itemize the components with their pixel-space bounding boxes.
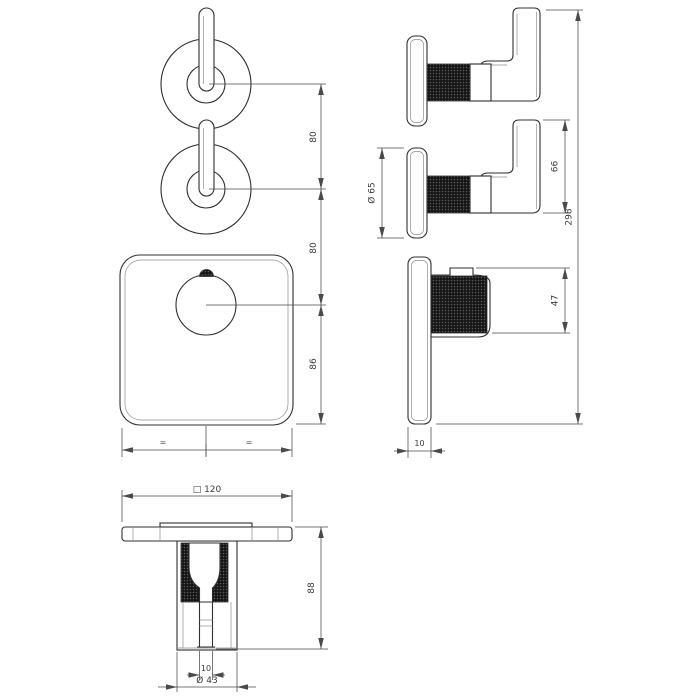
escutcheon-diameter-dimension: Ø 65 bbox=[367, 148, 405, 238]
dim-label-equal-left: = bbox=[160, 438, 167, 447]
mixer-technical-drawing: 80 80 86 = = Ø 65 66 298 bbox=[0, 0, 700, 700]
dim-label-equal-right: = bbox=[246, 438, 253, 447]
front-view-knobs bbox=[161, 8, 251, 234]
front-view-plate bbox=[120, 255, 293, 425]
dim-label-spacing-top: 80 bbox=[309, 131, 319, 143]
dim-label-overall-height: 298 bbox=[565, 208, 575, 225]
front-equal-dimension: = = bbox=[122, 426, 292, 457]
dim-label-spacing-mid: 80 bbox=[309, 242, 319, 254]
plate-width-dimension: □ 120 bbox=[122, 485, 292, 522]
body-knurled-ring bbox=[428, 276, 487, 333]
dim-label-stem-diameter: 10 bbox=[201, 664, 211, 673]
knob-top-lever bbox=[199, 8, 214, 91]
dim-label-knob-projection: 47 bbox=[551, 295, 561, 306]
dim-label-center-to-bottom: 86 bbox=[309, 358, 319, 370]
bottom-plate-raised-strip bbox=[160, 523, 252, 527]
wall-plate bbox=[120, 255, 293, 425]
dim-label-knob-depth: 88 bbox=[307, 582, 317, 594]
plate-thickness-dimension: 10 bbox=[394, 427, 445, 458]
handle-height-dimension: 66 bbox=[543, 120, 570, 213]
side-view-handle-top bbox=[407, 8, 540, 126]
side-view-body bbox=[408, 257, 490, 424]
dim-label-plate-thickness: 10 bbox=[414, 439, 424, 448]
dim-label-escutcheon-diameter: Ø 65 bbox=[367, 182, 378, 203]
dim-label-plate-width: □ 120 bbox=[193, 485, 222, 495]
dim-label-handle-height: 66 bbox=[551, 161, 561, 173]
knob-bottom-lever bbox=[199, 120, 214, 196]
bottom-view bbox=[122, 523, 292, 650]
technical-drawing-canvas: 80 80 86 = = Ø 65 66 298 bbox=[0, 0, 700, 700]
side-view-handle-middle bbox=[407, 120, 540, 238]
bottom-plate-edge bbox=[122, 527, 292, 541]
dim-label-knob-diameter: Ø 43 bbox=[196, 675, 217, 686]
